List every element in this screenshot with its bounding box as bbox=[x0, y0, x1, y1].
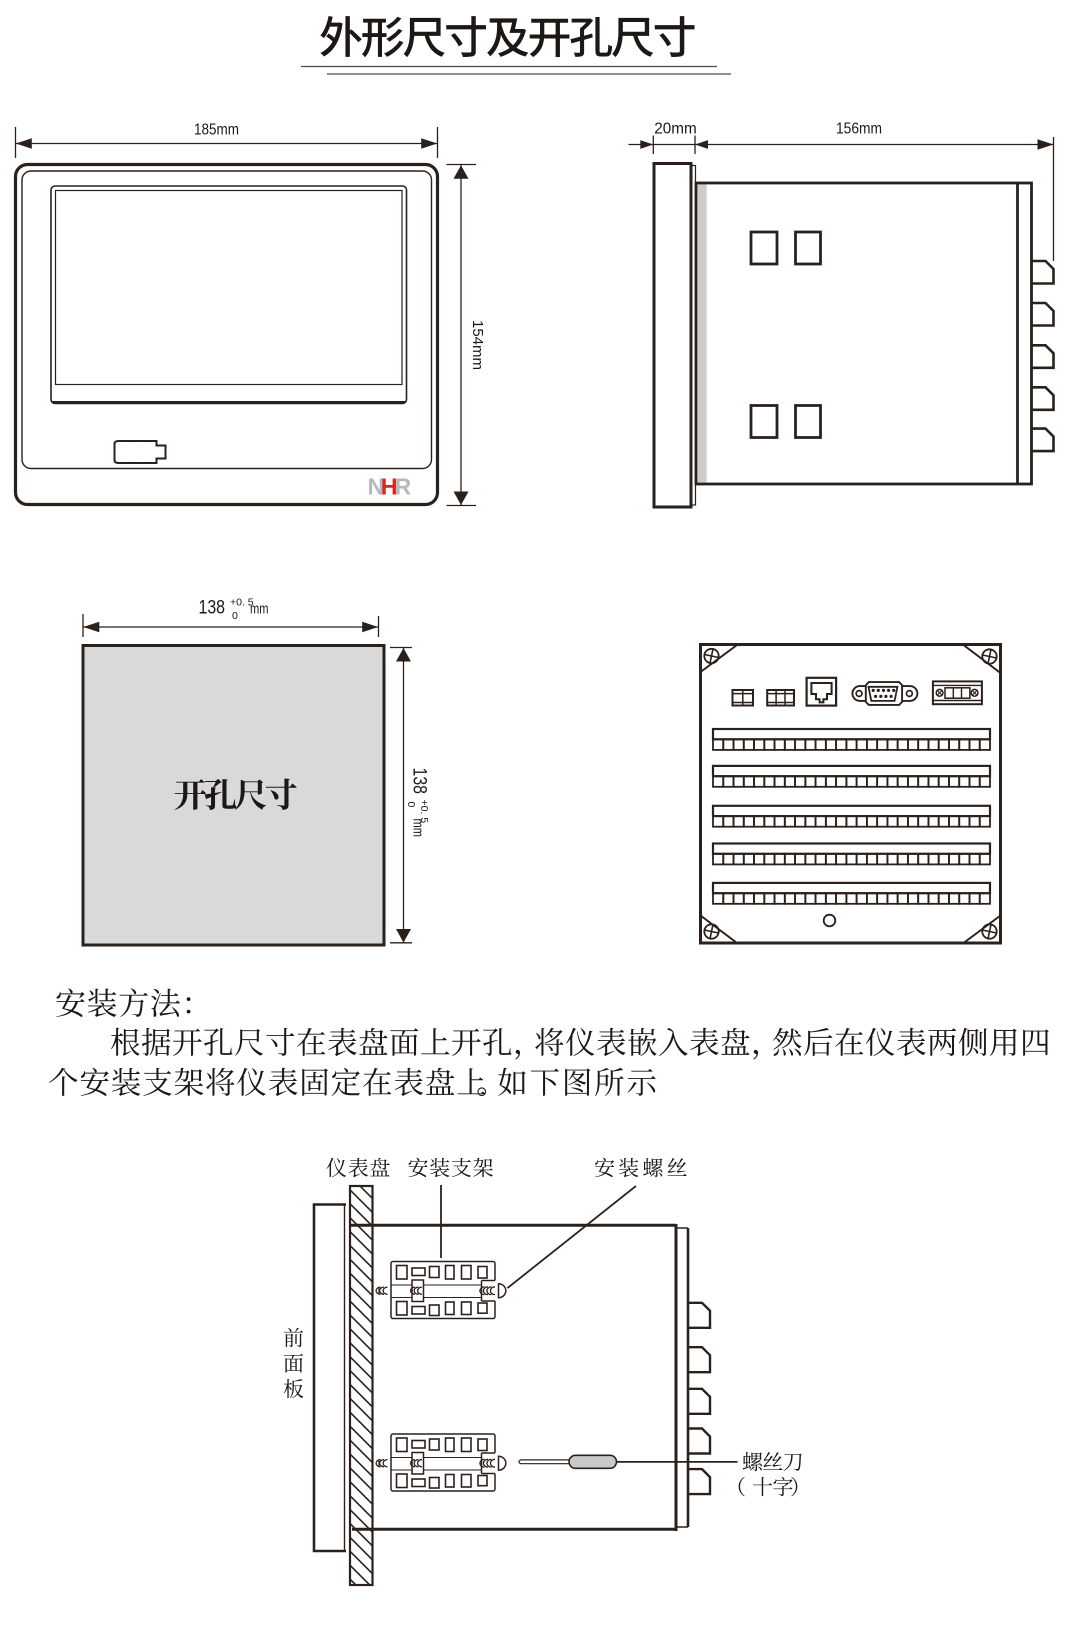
svg-text:156mm: 156mm bbox=[836, 121, 882, 138]
svg-text:mm: mm bbox=[410, 819, 427, 838]
svg-text:0: 0 bbox=[405, 802, 417, 808]
svg-text:0: 0 bbox=[232, 610, 238, 622]
svg-text:20mm: 20mm bbox=[654, 121, 697, 138]
svg-text:138: 138 bbox=[199, 598, 226, 619]
svg-text:H: H bbox=[381, 474, 398, 500]
svg-text:mm: mm bbox=[250, 601, 269, 618]
svg-text:138: 138 bbox=[409, 768, 430, 795]
svg-text:154mm: 154mm bbox=[469, 320, 486, 370]
svg-text:185mm: 185mm bbox=[194, 122, 239, 139]
